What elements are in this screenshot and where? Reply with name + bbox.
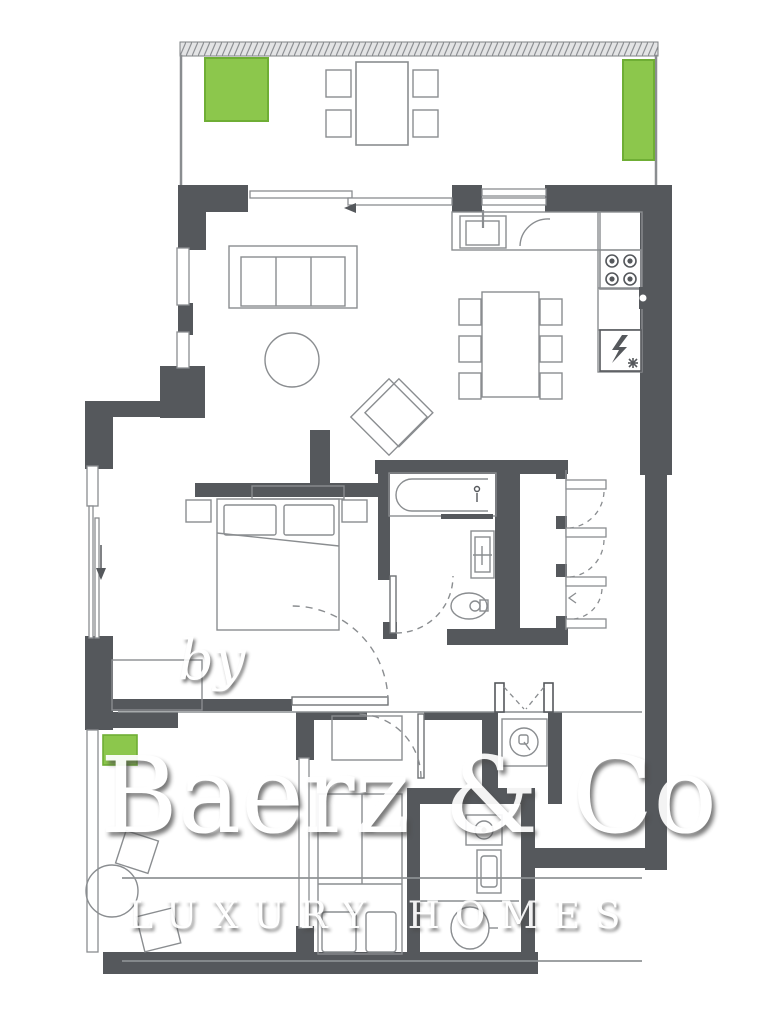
closet-mark: [569, 593, 576, 603]
door-swing-arc: [570, 492, 604, 528]
tub-screen: [441, 514, 493, 519]
terrace-top: [180, 42, 658, 195]
terrace-table-icon: [356, 62, 408, 145]
entrance-double-door-icon: [495, 683, 504, 712]
wall-segment: [178, 210, 206, 250]
wall-segment: [424, 712, 482, 720]
door-swing-arc: [292, 606, 388, 702]
nightstand-icon: [342, 500, 367, 522]
dining-chair-icon: [540, 336, 562, 362]
wall-segment: [545, 185, 647, 212]
dining-chair-icon: [540, 299, 562, 325]
window-glazing: [482, 189, 546, 196]
living-room: [229, 246, 433, 456]
kitchen-corner-unit: [520, 219, 550, 246]
dining-chair-icon: [459, 373, 481, 399]
watermark-by: by: [178, 628, 245, 693]
floor-plan-page: by Baerz & Co LUXURY HOMES: [0, 0, 758, 1015]
planter-icon: [623, 60, 654, 160]
dining-table-icon: [482, 292, 539, 397]
wall-segment: [375, 460, 568, 474]
fridge-icon: [600, 330, 641, 371]
sliding-door-icon: [348, 198, 452, 205]
wall-segment: [495, 462, 520, 645]
watermark-tagline: LUXURY HOMES: [112, 894, 652, 937]
toilet-icon: [470, 601, 480, 611]
window-glazing: [177, 248, 189, 305]
wall-segment: [85, 401, 113, 469]
bathroom-1: [389, 473, 496, 633]
floor-plan-drawing: [0, 0, 758, 1015]
dining-chair-icon: [459, 299, 481, 325]
sofa-icon: [229, 246, 357, 308]
wall-segment: [178, 303, 193, 335]
door-swing-arc: [526, 687, 544, 709]
dining-chair-icon: [540, 373, 562, 399]
watermark-brand: Baerz & Co: [100, 740, 650, 851]
window-glazing: [177, 332, 189, 368]
dining-set: [459, 292, 562, 399]
wall-segment: [160, 366, 205, 418]
watermark-rule: [122, 877, 642, 879]
entrance: [495, 683, 553, 712]
snowflake-glyph: [628, 358, 638, 368]
door-swing-arc: [396, 576, 453, 633]
door-swing-arc: [504, 687, 524, 709]
closet-shelf-icon: [566, 577, 606, 586]
pillow-icon: [224, 505, 276, 535]
terrace-hatched-wall: [180, 42, 658, 56]
dining-chair-icon: [459, 336, 481, 362]
nightstand-icon: [186, 500, 211, 522]
window-glazing: [87, 466, 98, 506]
wall-segment: [452, 185, 482, 212]
sliding-door-icon: [95, 518, 99, 638]
door-leaf: [390, 576, 396, 633]
watermark-rule: [122, 960, 642, 962]
wall-segment: [103, 952, 538, 974]
armchair-icon: [351, 374, 433, 456]
hob-icon: [600, 250, 641, 289]
wall-segment: [195, 483, 380, 497]
bathtub-icon: [396, 479, 488, 511]
planter-icon: [205, 58, 268, 121]
wall-handle: [640, 295, 647, 302]
sofa-icon: [241, 257, 345, 306]
window-glazing: [87, 730, 98, 952]
terrace-chair-icon: [413, 110, 438, 137]
wall-segment: [378, 472, 390, 580]
sliding-door-icon: [89, 506, 93, 638]
terrace-chair-icon: [413, 70, 438, 97]
wall-segment: [310, 430, 330, 485]
closet-shelf-icon: [566, 480, 606, 489]
door-swing-arc: [570, 540, 604, 577]
bathtub-tap: [475, 487, 480, 492]
shower-icon: [481, 856, 497, 887]
door-swing-arc: [574, 589, 602, 619]
wall-segment: [520, 628, 568, 645]
sliding-door-icon: [250, 191, 352, 198]
door-leaf: [292, 697, 388, 705]
wall-segment: [178, 185, 248, 212]
toilet-icon: [451, 593, 487, 619]
wall-segment: [100, 712, 178, 728]
wall-segment: [640, 185, 672, 475]
terrace-chair-icon: [326, 70, 351, 97]
terrace-chair-icon: [326, 110, 351, 137]
window-glazing: [482, 198, 546, 205]
entrance-double-door-icon: [544, 683, 553, 712]
closet-shelf-icon: [566, 528, 606, 537]
hall-closet: [566, 470, 606, 630]
coffee-table-icon: [265, 333, 319, 387]
pillow-icon: [284, 505, 334, 535]
closet-shelf-icon: [566, 619, 606, 628]
